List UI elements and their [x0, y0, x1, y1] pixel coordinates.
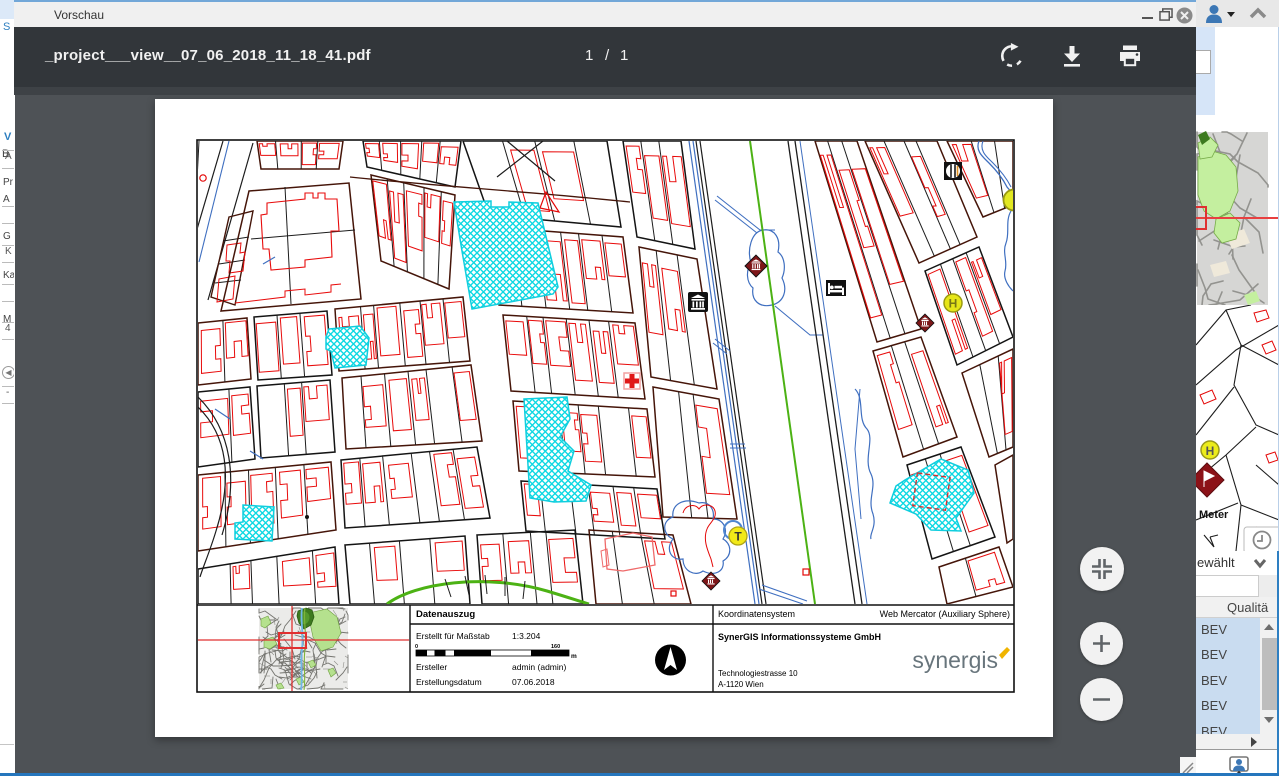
- svg-text:1:3.204: 1:3.204: [512, 631, 541, 641]
- svg-text:Koordinatensystem: Koordinatensystem: [718, 609, 795, 619]
- svg-text:A-1120 Wien: A-1120 Wien: [718, 680, 764, 689]
- svg-text:m: m: [571, 653, 577, 660]
- svg-text:Erstellungsdatum: Erstellungsdatum: [416, 677, 482, 687]
- svg-text:Web Mercator (Auxiliary Sphere: Web Mercator (Auxiliary Sphere): [880, 609, 1010, 619]
- svg-text:admin (admin): admin (admin): [512, 662, 566, 672]
- svg-text:Meter: Meter: [1199, 509, 1229, 521]
- svg-text:T: T: [734, 530, 742, 544]
- svg-text:160: 160: [551, 644, 560, 650]
- svg-text:H: H: [949, 297, 958, 311]
- svg-text:0: 0: [415, 644, 418, 650]
- svg-text:synergis: synergis: [912, 647, 998, 673]
- svg-text:Datenauszug: Datenauszug: [416, 609, 475, 620]
- svg-text:Technologiestrasse 10: Technologiestrasse 10: [718, 669, 798, 678]
- svg-text:Ersteller: Ersteller: [416, 662, 447, 672]
- svg-text:Erstellt für Maßstab: Erstellt für Maßstab: [416, 631, 490, 641]
- svg-text:SynerGIS Informationssysteme G: SynerGIS Informationssysteme GmbH: [718, 632, 881, 642]
- svg-text:07.06.2018: 07.06.2018: [512, 677, 555, 687]
- svg-text:H: H: [1206, 444, 1215, 458]
